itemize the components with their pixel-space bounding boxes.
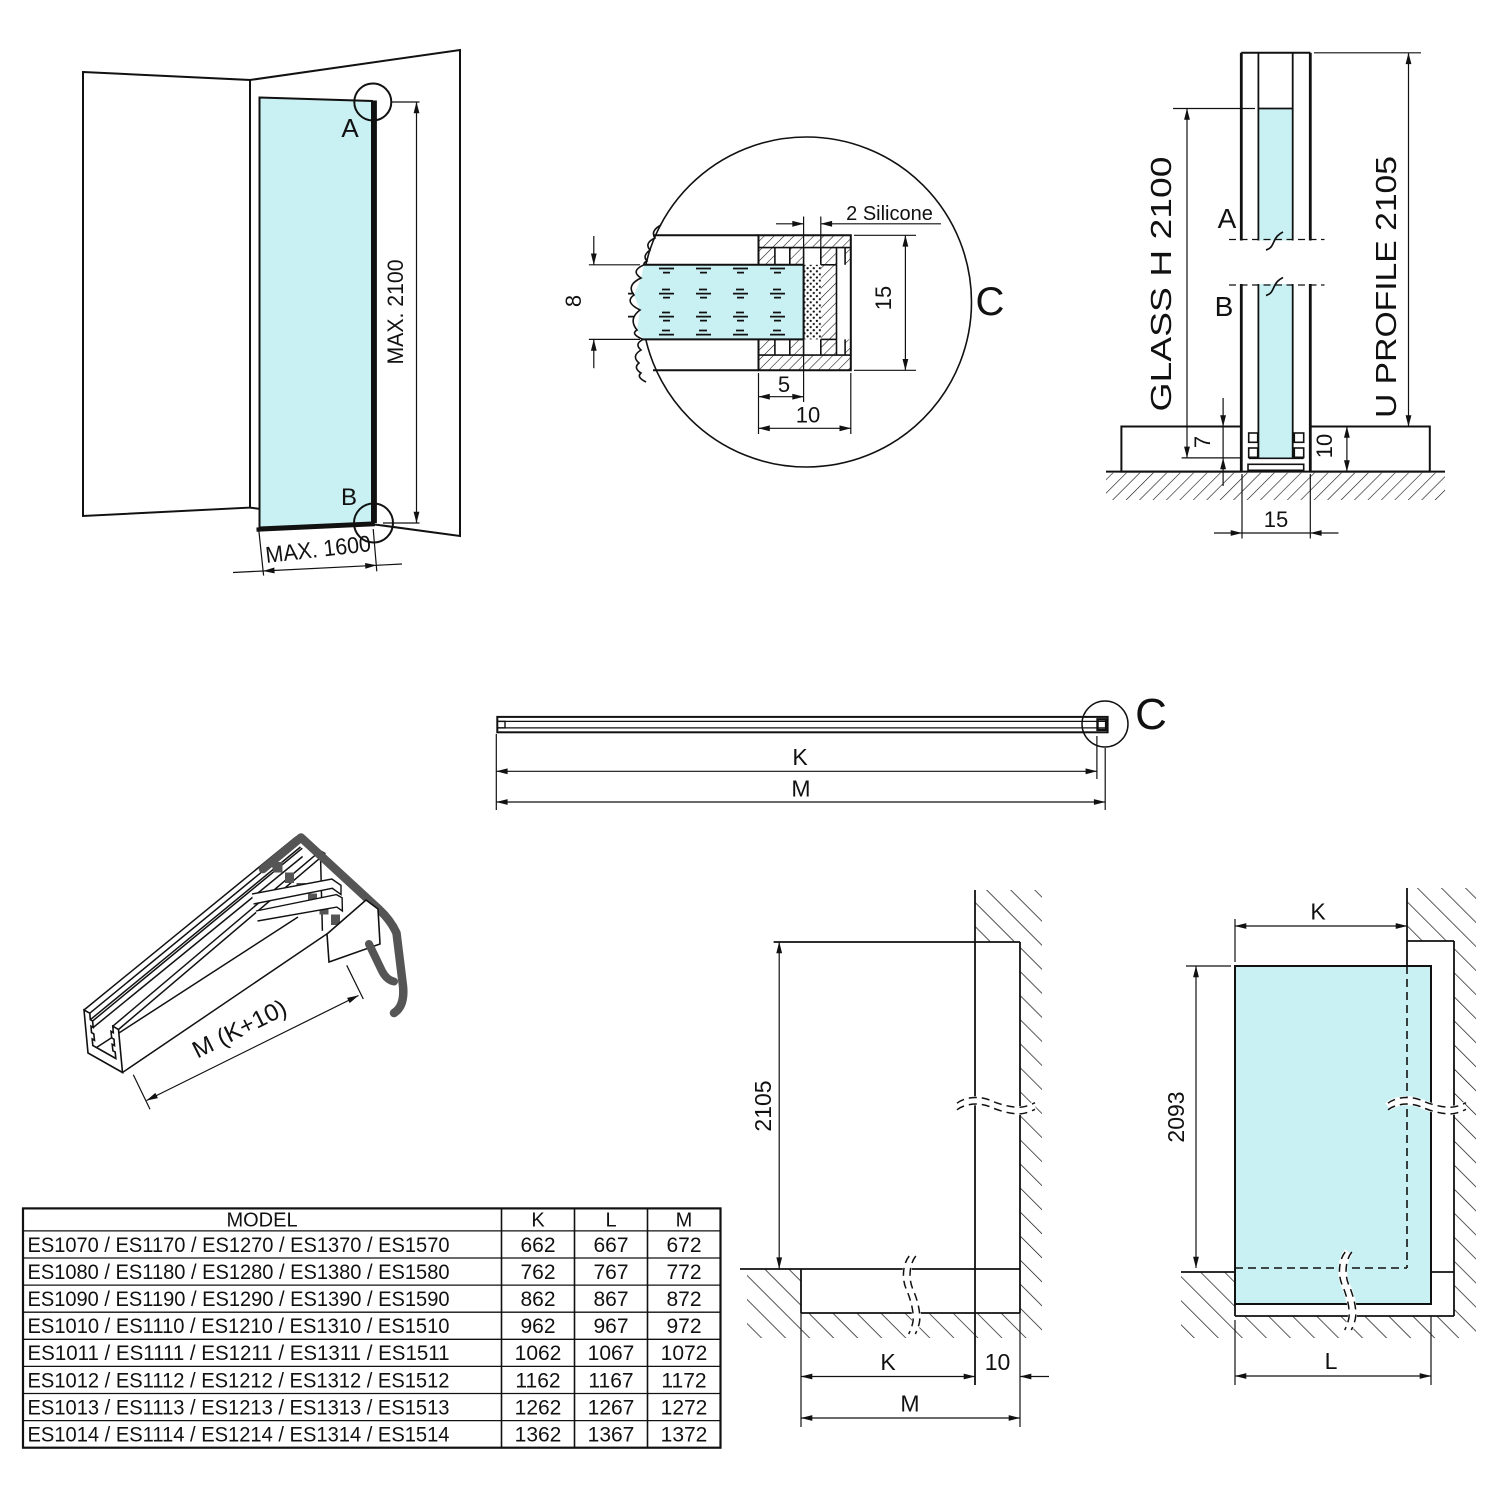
svg-text:772: 772 bbox=[666, 1261, 701, 1284]
svg-text:7: 7 bbox=[1190, 436, 1215, 448]
svg-text:15: 15 bbox=[1264, 507, 1288, 532]
svg-text:A: A bbox=[341, 113, 359, 143]
svg-text:ES1012 / ES1112 / ES1212 / ES1: ES1012 / ES1112 / ES1212 / ES1312 / ES15… bbox=[28, 1369, 450, 1392]
svg-text:L: L bbox=[605, 1210, 616, 1232]
svg-text:1172: 1172 bbox=[661, 1369, 706, 1392]
svg-text:767: 767 bbox=[593, 1261, 628, 1284]
svg-text:B: B bbox=[341, 484, 357, 511]
svg-text:L: L bbox=[1325, 1348, 1338, 1374]
svg-text:1272: 1272 bbox=[661, 1396, 708, 1419]
svg-text:10: 10 bbox=[796, 403, 820, 428]
svg-text:10: 10 bbox=[1312, 434, 1337, 458]
svg-text:867: 867 bbox=[593, 1288, 628, 1311]
svg-text:C: C bbox=[976, 280, 1005, 324]
svg-text:762: 762 bbox=[520, 1261, 555, 1284]
svg-text:K: K bbox=[531, 1210, 545, 1232]
svg-text:ES1080 / ES1180 / ES1280 / ES1: ES1080 / ES1180 / ES1280 / ES1380 / ES15… bbox=[28, 1261, 450, 1284]
svg-text:M: M bbox=[900, 1391, 919, 1417]
svg-text:ES1090 / ES1190 / ES1290 / ES1: ES1090 / ES1190 / ES1290 / ES1390 / ES15… bbox=[28, 1288, 450, 1311]
svg-text:B: B bbox=[1215, 291, 1234, 322]
svg-text:1362: 1362 bbox=[515, 1424, 562, 1447]
svg-text:1162: 1162 bbox=[515, 1369, 560, 1392]
svg-text:K: K bbox=[792, 744, 808, 770]
svg-text:2105: 2105 bbox=[750, 1080, 776, 1131]
svg-text:972: 972 bbox=[666, 1315, 701, 1338]
svg-text:962: 962 bbox=[520, 1315, 555, 1338]
svg-text:K: K bbox=[880, 1349, 896, 1375]
svg-text:A: A bbox=[1218, 203, 1237, 234]
svg-text:1267: 1267 bbox=[588, 1396, 635, 1419]
svg-text:8: 8 bbox=[561, 295, 586, 307]
svg-text:15: 15 bbox=[871, 286, 896, 310]
svg-text:2 Silicone: 2 Silicone bbox=[846, 203, 933, 225]
svg-text:2093: 2093 bbox=[1163, 1091, 1189, 1142]
svg-text:5: 5 bbox=[778, 372, 790, 397]
svg-text:M: M bbox=[676, 1210, 693, 1232]
svg-text:ES1014 / ES1114 / ES1214 / ES1: ES1014 / ES1114 / ES1214 / ES1314 / ES15… bbox=[28, 1424, 450, 1447]
svg-text:ES1011 / ES1111 / ES1211 / ES1: ES1011 / ES1111 / ES1211 / ES1311 / ES15… bbox=[28, 1342, 450, 1365]
svg-text:K: K bbox=[1310, 899, 1326, 925]
svg-text:10: 10 bbox=[985, 1349, 1011, 1375]
svg-text:662: 662 bbox=[520, 1234, 555, 1257]
svg-text:C: C bbox=[1135, 690, 1167, 739]
svg-text:1072: 1072 bbox=[661, 1342, 708, 1365]
svg-text:862: 862 bbox=[520, 1288, 555, 1311]
svg-text:ES1070 / ES1170 / ES1270 / ES1: ES1070 / ES1170 / ES1270 / ES1370 / ES15… bbox=[28, 1234, 450, 1257]
svg-text:1067: 1067 bbox=[588, 1342, 635, 1365]
svg-text:ES1010 / ES1110 / ES1210 / ES1: ES1010 / ES1110 / ES1210 / ES1310 / ES15… bbox=[28, 1315, 450, 1338]
svg-text:M: M bbox=[791, 776, 810, 802]
svg-text:672: 672 bbox=[666, 1234, 701, 1257]
svg-text:MODEL: MODEL bbox=[226, 1210, 297, 1232]
svg-text:1367: 1367 bbox=[588, 1424, 635, 1447]
svg-text:1167: 1167 bbox=[588, 1369, 633, 1392]
svg-text:1372: 1372 bbox=[661, 1424, 708, 1447]
svg-text:667: 667 bbox=[593, 1234, 628, 1257]
svg-text:872: 872 bbox=[666, 1288, 701, 1311]
svg-text:MAX. 1600: MAX. 1600 bbox=[264, 530, 372, 568]
svg-text:967: 967 bbox=[593, 1315, 628, 1338]
svg-text:GLASS H 2100: GLASS H 2100 bbox=[1146, 157, 1178, 412]
svg-text:1262: 1262 bbox=[515, 1396, 562, 1419]
svg-text:1062: 1062 bbox=[515, 1342, 562, 1365]
svg-text:ES1013 / ES1113 / ES1213 / ES1: ES1013 / ES1113 / ES1213 / ES1313 / ES15… bbox=[28, 1396, 450, 1419]
svg-text:U PROFILE 2105: U PROFILE 2105 bbox=[1371, 156, 1403, 418]
svg-text:MAX. 2100: MAX. 2100 bbox=[383, 260, 408, 365]
